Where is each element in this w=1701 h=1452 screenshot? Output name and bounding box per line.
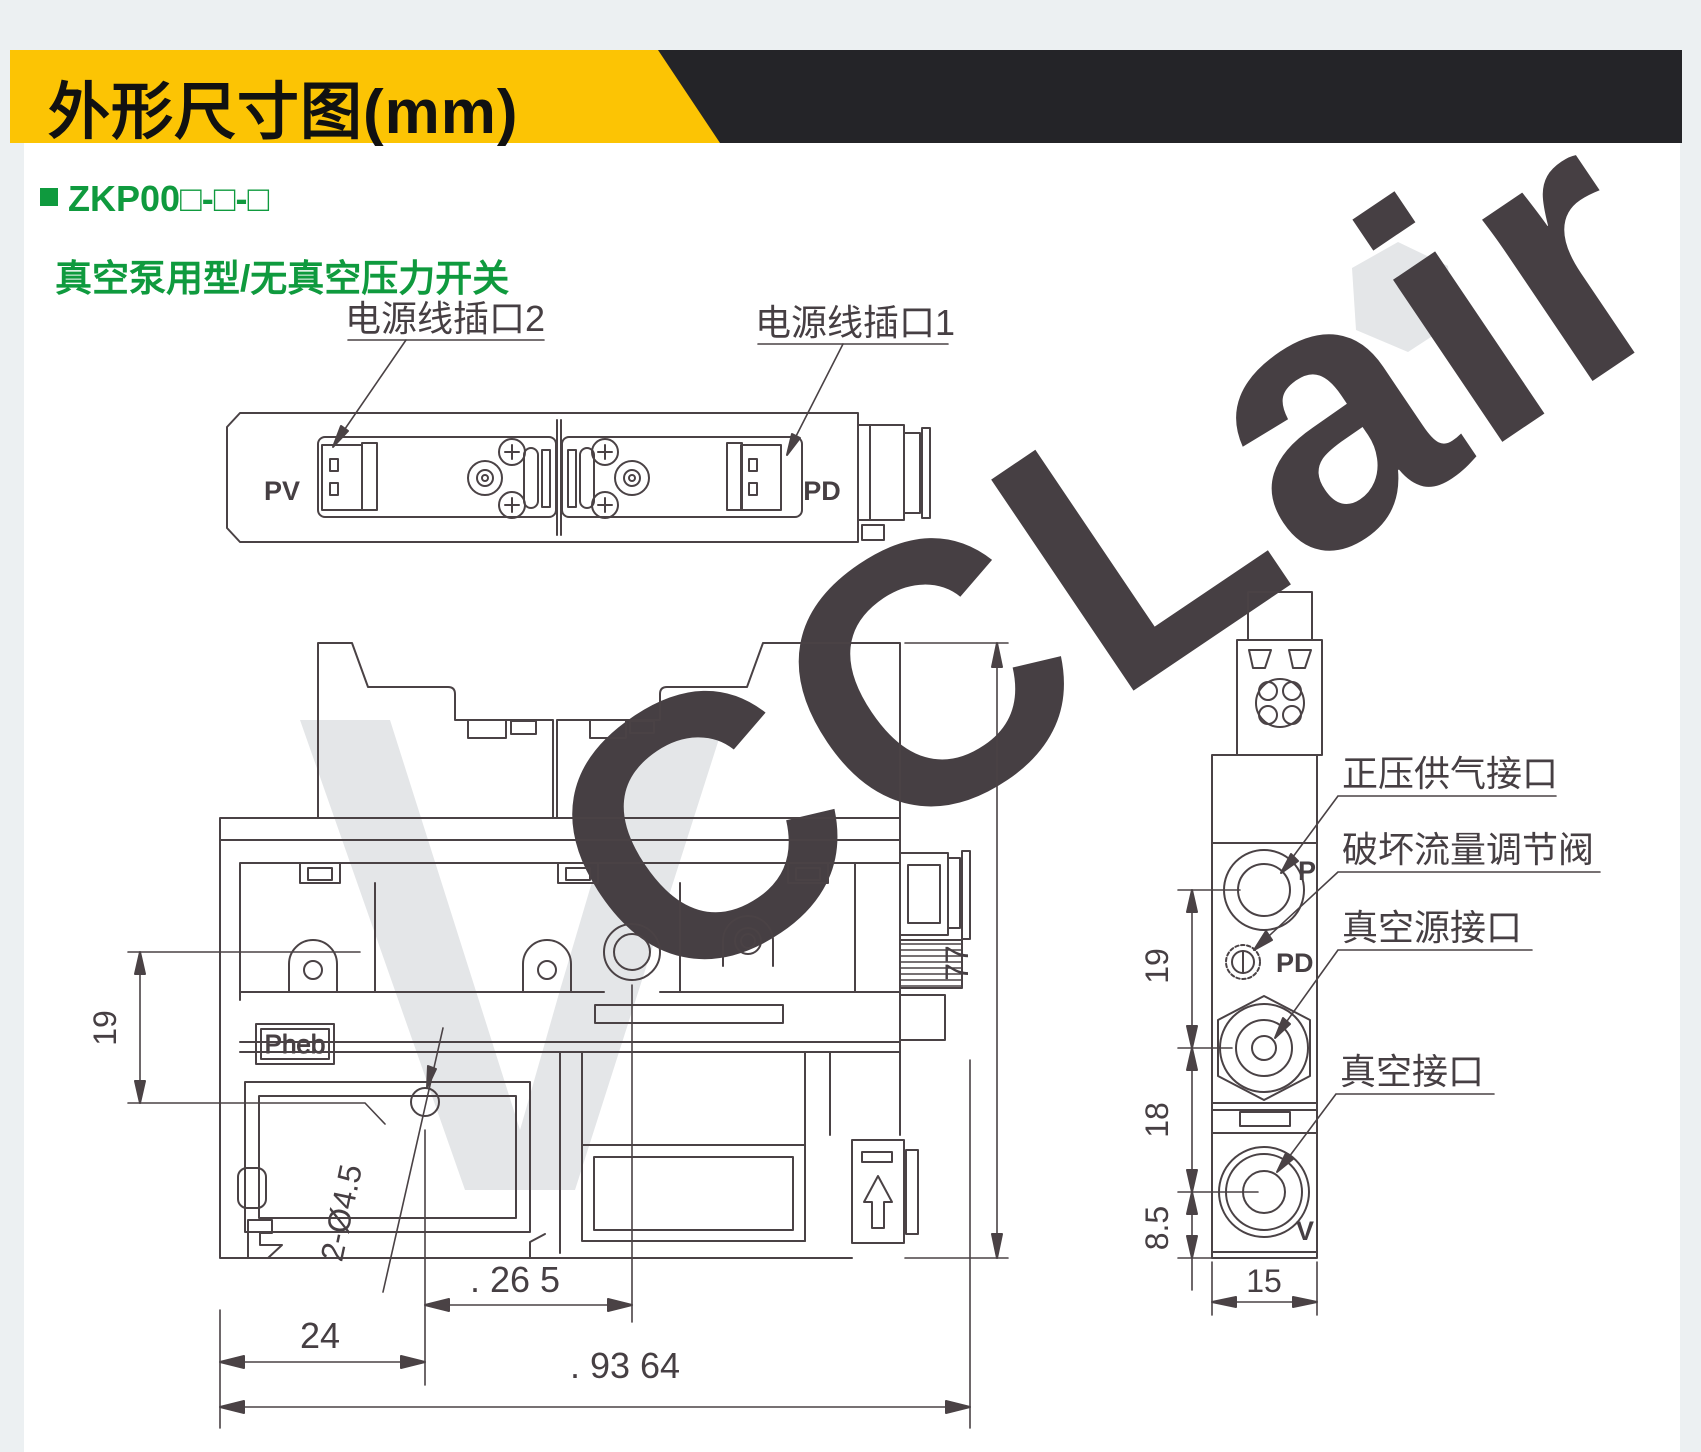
dim-26-5: . 26 5 — [470, 1259, 560, 1300]
dim-18: 18 — [1139, 1102, 1175, 1138]
dimension-drawing: CCLair — [0, 0, 1701, 1452]
label-power-port-2: 电源线插口2 — [345, 298, 545, 339]
label-power-port-1: 电源线插口1 — [755, 302, 955, 343]
label-vacuum-source-port: 真空源接口 — [1342, 907, 1522, 948]
pv-port-label: PV — [264, 476, 300, 506]
dim-93-64: . 93 64 — [570, 1345, 680, 1386]
brand-label: Pheb — [265, 1029, 326, 1059]
dim-2-d4p5: 2-Ø4.5 — [313, 1161, 369, 1264]
dim-19-side: 19 — [1139, 948, 1175, 984]
side-port-p-label: P — [1298, 856, 1316, 886]
label-vacuum-port: 真空接口 — [1340, 1051, 1484, 1092]
side-port-pd-label: PD — [1276, 948, 1314, 978]
dim-19-front: 19 — [87, 1010, 123, 1046]
dim-15: 15 — [1246, 1263, 1282, 1299]
watermark-logo: CCLair — [300, 35, 1701, 1190]
label-break-flow-valve: 破坏流量调节阀 — [1342, 829, 1594, 870]
dim-24: 24 — [300, 1315, 340, 1356]
dim-8-5: 8.5 — [1139, 1206, 1175, 1250]
dim-77: 77 — [939, 945, 975, 981]
label-supply-port: 正压供气接口 — [1342, 753, 1558, 794]
side-port-v-label: V — [1296, 1216, 1314, 1246]
pd-port-label: PD — [803, 476, 841, 506]
